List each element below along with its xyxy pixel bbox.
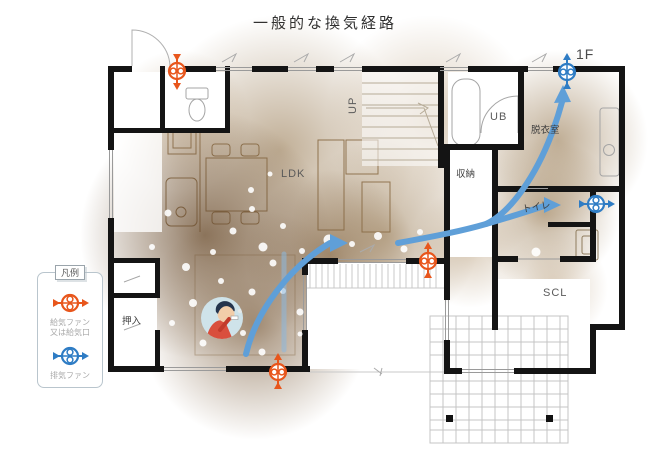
room-label-ub: UB — [490, 111, 507, 123]
legend-header: 凡例 — [55, 265, 85, 280]
room-label-storage: 収納 — [456, 168, 475, 180]
room-label-closet: 押入 — [122, 315, 142, 327]
exhaust-fan-icon — [47, 342, 93, 370]
legend-item-supply: 給気ファン 又は給気口 — [40, 289, 100, 338]
exhaust-fan-label: 排気ファン — [50, 371, 90, 381]
room-label-scl: SCL — [543, 287, 567, 299]
room-label-up: UP — [347, 97, 359, 114]
ventilation-diagram: 一般的な換気経路 1F — [0, 0, 650, 450]
room-label-dressing: 脱衣室 — [531, 124, 560, 136]
legend-item-exhaust: 排気ファン — [40, 342, 100, 381]
supply-fan-icon — [47, 289, 93, 317]
supply-fan-label: 給気ファン 又は給気口 — [50, 318, 90, 338]
room-label-ldk: LDK — [281, 168, 305, 180]
legend-box: 凡例 給気ファン 又は給気口 排気ファン — [37, 272, 103, 388]
